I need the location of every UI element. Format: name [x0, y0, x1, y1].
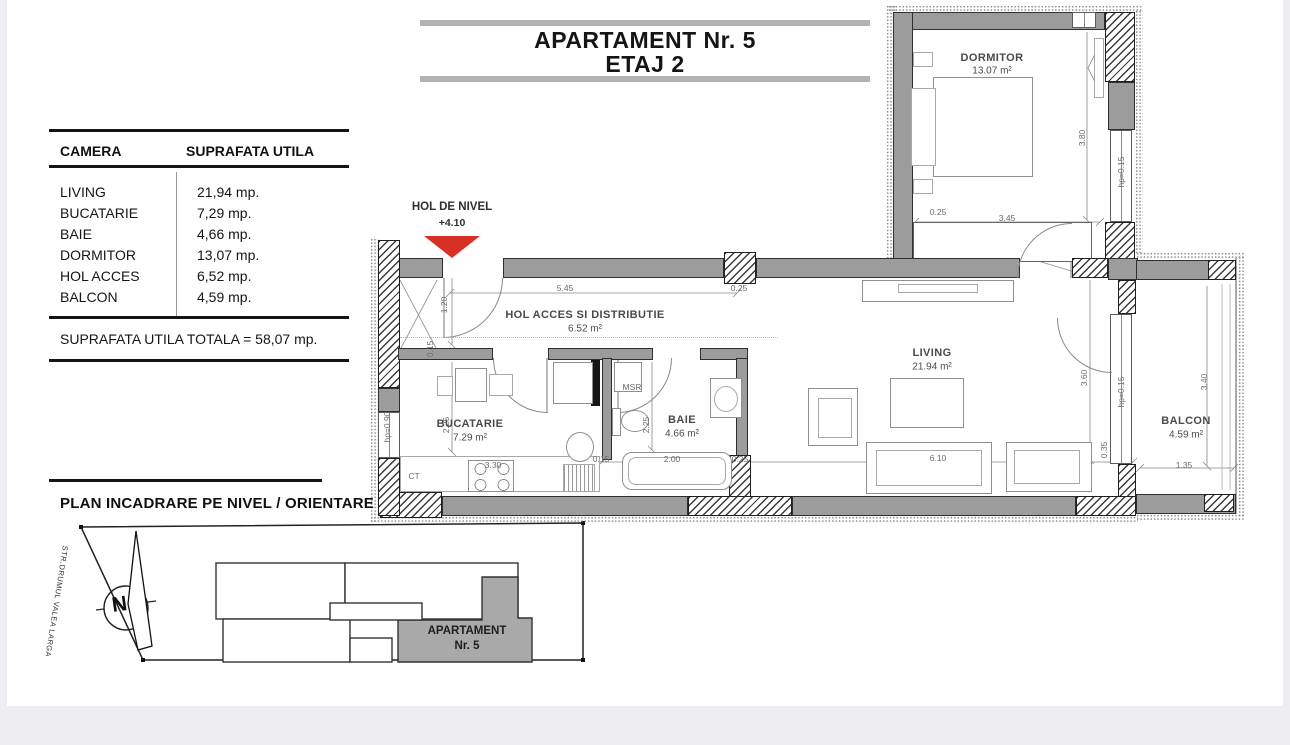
room-area-living: 21.94 m² — [912, 362, 951, 373]
nightstand — [913, 52, 933, 67]
wall — [378, 388, 400, 412]
kitchen-table — [455, 368, 487, 402]
chair — [489, 374, 513, 396]
wall-pillar — [1105, 12, 1135, 82]
dimension-label: 5.45 — [557, 283, 574, 293]
dimension-label: 0.15 — [593, 454, 610, 464]
insulation-edge — [1238, 256, 1245, 518]
fridge — [553, 362, 593, 404]
dimension-label: hp=0.15 — [1116, 377, 1126, 408]
wall-pillar — [1118, 464, 1136, 498]
coffee-table — [890, 378, 964, 428]
wall-pillar — [1076, 496, 1136, 516]
wall — [1108, 82, 1135, 130]
insulation-edge — [1136, 514, 1244, 521]
dimension-label: 0.25 — [930, 207, 947, 217]
bed — [933, 77, 1033, 177]
compass-north-letter: N — [110, 592, 128, 618]
guide-line — [400, 337, 778, 338]
room-area-balcon: 4.59 m² — [1169, 430, 1203, 441]
room-area-dormitor: 13.07 m² — [972, 66, 1011, 77]
dimension-label: 1.20 — [439, 297, 449, 314]
insulation-edge — [1135, 10, 1143, 255]
bathroom-sink — [714, 386, 738, 412]
tv — [898, 284, 978, 293]
dresser — [911, 88, 936, 166]
kitchen-sink — [566, 432, 594, 462]
dimension-label: 2.00 — [664, 454, 681, 464]
insulation-edge — [370, 516, 1138, 523]
wall — [792, 496, 1076, 516]
insulation-edge — [370, 238, 378, 522]
dimension-label: 3.80 — [1077, 130, 1087, 147]
dimension-label: 3.45 — [999, 213, 1016, 223]
room-label-balcon: BALCON — [1161, 415, 1210, 427]
dimension-label: MSR — [623, 382, 642, 392]
room-label-hol: HOL ACCES SI DISTRIBUTIE — [505, 309, 664, 321]
dimension-label: 3.30 — [485, 460, 502, 470]
wall — [442, 496, 688, 516]
room-label-living: LIVING — [912, 347, 951, 359]
wardrobe — [1094, 38, 1104, 98]
apartment-site-label-line1: APARTAMENT — [405, 624, 529, 639]
vent-window — [1072, 12, 1096, 28]
room-area-baie: 4.66 m² — [665, 429, 699, 440]
dimension-label: 0.15 — [425, 341, 435, 358]
site-plan-heading: PLAN INCADRARE PE NIVEL / ORIENTARE — [60, 495, 374, 512]
dimension-label: hp=0.15 — [1116, 157, 1126, 188]
dimension-label: 6.10 — [930, 453, 947, 463]
wall — [398, 258, 443, 278]
dimension-label: 1.35 — [1176, 460, 1193, 470]
dimension-label: 2.25 — [641, 417, 651, 434]
dimension-label: 3.60 — [1079, 370, 1089, 387]
dimension-label: 0.25 — [731, 283, 748, 293]
dimension-label: 3.40 — [1199, 374, 1209, 391]
wall-pillar — [724, 252, 756, 284]
chair — [437, 376, 453, 396]
dimension-label: CT — [408, 471, 419, 481]
nightstand — [913, 179, 933, 194]
wall-pillar — [378, 458, 400, 516]
apartment-site-label-line2: Nr. 5 — [405, 639, 529, 654]
room-area-bucatarie: 7.29 m² — [453, 433, 487, 444]
dimension-label: 0.35 — [1099, 442, 1109, 459]
dimension-label: hp=0.90 — [382, 412, 392, 443]
room-label-baie: BAIE — [668, 414, 696, 426]
drainer — [563, 464, 595, 492]
wall-pillar — [688, 496, 792, 516]
wall — [893, 12, 913, 265]
section-rule — [49, 479, 322, 482]
apartment-site-label: APARTAMENT Nr. 5 — [405, 624, 529, 654]
wall-pillar — [378, 240, 400, 388]
level-marker-elevation: +4.10 — [439, 217, 466, 229]
wall — [1108, 258, 1138, 280]
wall — [756, 258, 1020, 278]
room-area-hol: 6.52 m² — [568, 324, 602, 335]
wall-pillar — [1118, 280, 1136, 314]
wall-pillar — [1072, 258, 1108, 278]
toilet-tank — [612, 408, 621, 436]
wall-pillar — [1208, 260, 1236, 280]
wall — [503, 258, 724, 278]
insulation-edge — [1136, 252, 1244, 259]
wall — [398, 348, 493, 360]
dimension-label: 0.25 — [732, 454, 749, 464]
wall — [602, 358, 612, 460]
wall-pillar — [1204, 494, 1234, 512]
room-label-dormitor: DORMITOR — [961, 52, 1024, 64]
level-marker-arrow — [424, 236, 480, 258]
level-marker-label: HOL DE NIVEL — [412, 201, 492, 213]
dimension-label: 2.25 — [441, 417, 451, 434]
sofa-seat — [1014, 450, 1080, 484]
armchair-seat — [818, 398, 852, 438]
